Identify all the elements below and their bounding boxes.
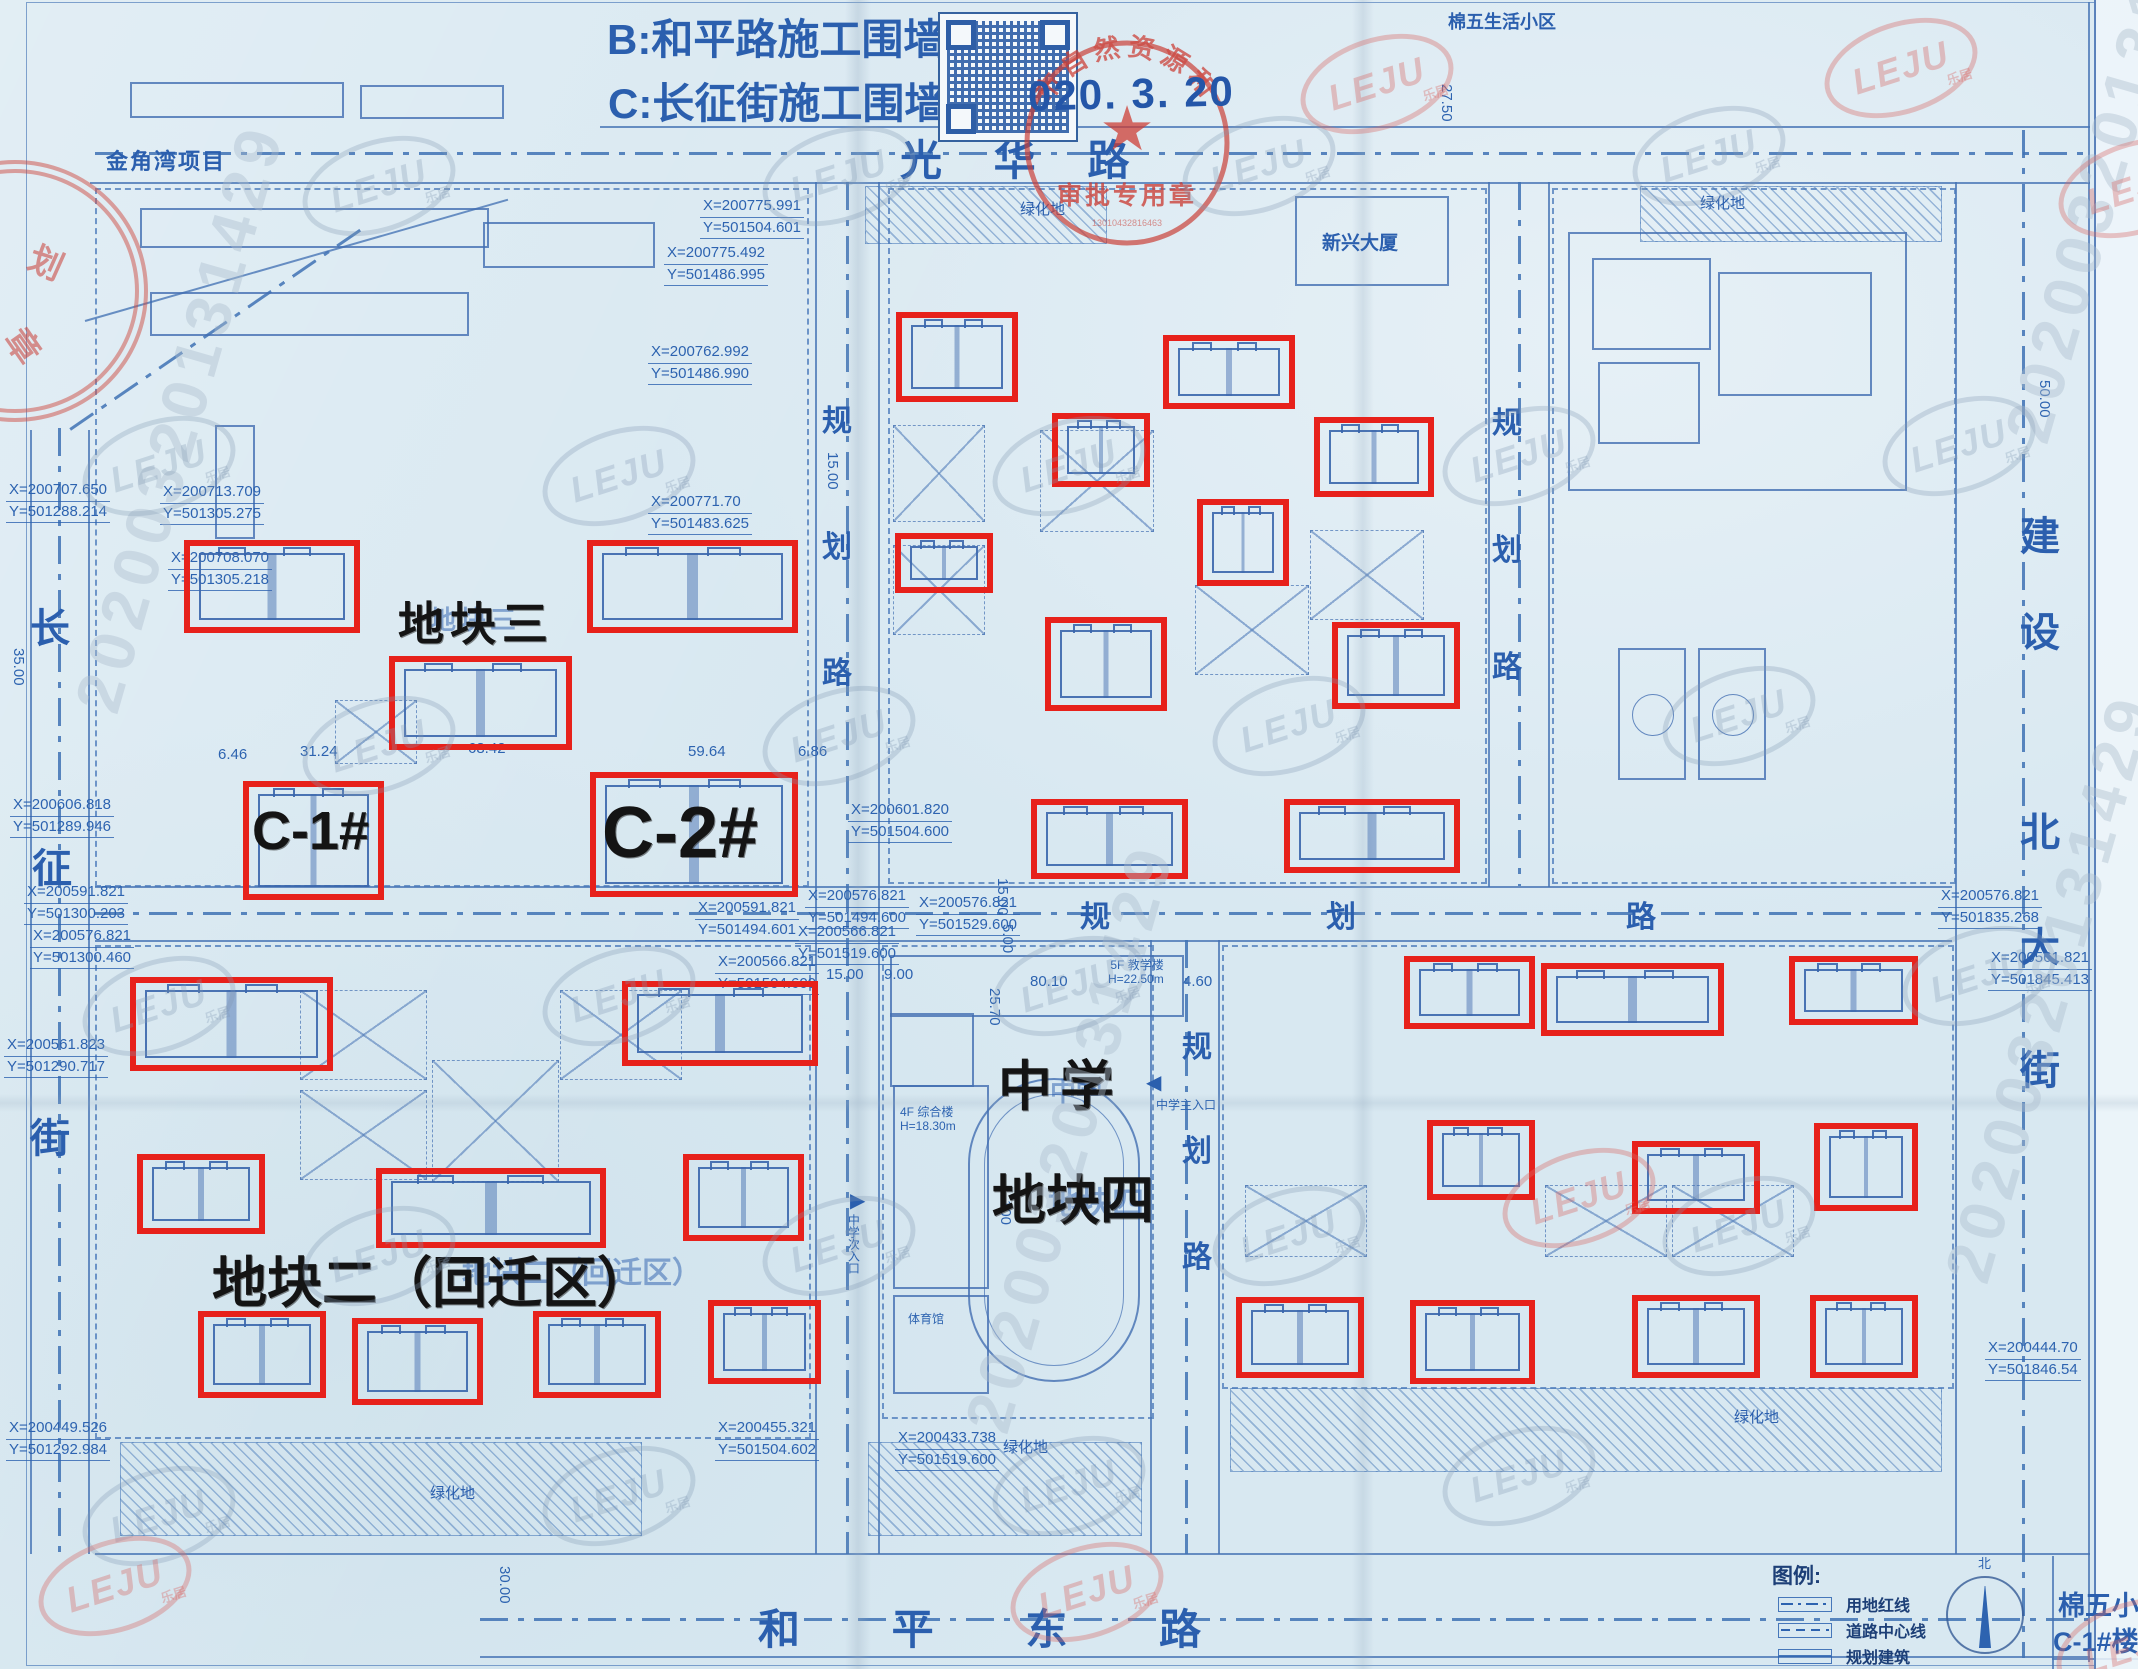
green-label: 绿化地	[430, 1482, 475, 1503]
entry-arrow-icon: ◀	[1146, 1070, 1161, 1095]
dimension-label: 9.00	[884, 966, 913, 983]
legend-item-label: 道路中心线	[1846, 1618, 1926, 1642]
highlight-box	[1031, 799, 1188, 879]
road-name-char: 长	[30, 596, 70, 654]
building-outline	[1556, 976, 1709, 1023]
legend-row: 道路中心线	[1778, 1618, 1926, 1642]
legend-row: 用地红线	[1778, 1592, 1910, 1616]
coordinate-label: X=200606.818Y=501289.946	[10, 795, 114, 838]
building-outline	[548, 1324, 646, 1385]
highlight-box	[896, 312, 1018, 402]
label-c1: C-1#	[252, 800, 369, 862]
highlight-box	[533, 1311, 661, 1398]
site-building-name: C-1#楼	[2053, 1620, 2138, 1659]
highlight-box	[1052, 413, 1150, 487]
coordinate-label: X=200561.821Y=501845.413	[1988, 948, 2092, 991]
legend-item-label: 用地红线	[1846, 1592, 1910, 1616]
road-name-char: 划	[1492, 525, 1522, 569]
road-heping-east: 和 平 东 路	[758, 1596, 1241, 1657]
building-outline	[1212, 512, 1274, 573]
qr-finder	[946, 104, 976, 134]
building-outline	[1442, 1133, 1520, 1187]
coordinate-label: X=200444.70Y=501846.54	[1985, 1338, 2081, 1381]
highlight-box	[198, 1311, 326, 1398]
highlight-box	[389, 656, 572, 750]
building-outline	[1825, 1308, 1903, 1365]
building-outline	[1347, 635, 1445, 696]
coordinate-label: X=200449.526Y=501292.984	[6, 1418, 110, 1461]
building-outline	[1067, 426, 1135, 474]
highlight-box	[708, 1300, 821, 1384]
coordinate-label: X=200707.650Y=501288.214	[6, 480, 110, 523]
building-outline	[1647, 1154, 1745, 1201]
dimension-label: 30.00	[496, 1566, 513, 1604]
building-outline	[1829, 1136, 1903, 1198]
highlight-box	[1284, 799, 1460, 873]
label-plot4: 地块四	[992, 1156, 1154, 1235]
coordinate-label: X=200561.823Y=501290.717	[4, 1035, 108, 1078]
coordinate-label: X=200433.738Y=501519.600	[895, 1428, 999, 1471]
note-line-b: B:和平路施工围墙。	[607, 6, 987, 67]
highlight-box	[1810, 1295, 1918, 1378]
entry-main-label: 中学主入口	[1156, 1098, 1216, 1112]
teach-height: H=22.50m	[1108, 972, 1164, 986]
coordinate-label: X=200455.321Y=501504.602	[715, 1418, 819, 1461]
highlight-box	[1332, 622, 1460, 709]
building-outline	[152, 1167, 250, 1221]
highlight-box	[622, 981, 818, 1066]
coordinate-label: X=200775.991Y=501504.601	[700, 196, 804, 239]
dimension-label: 25.70	[986, 988, 1003, 1026]
label-plot2: 地块二（回迁区）	[212, 1238, 652, 1318]
coordinate-label: X=200601.820Y=501504.600	[848, 800, 952, 843]
road-name-char: 建	[2020, 504, 2060, 562]
building-outline	[911, 325, 1003, 389]
highlight-box	[1789, 956, 1918, 1025]
building-outline	[199, 553, 345, 620]
green-label: 绿化地	[1700, 192, 1745, 213]
highlight-box	[1404, 956, 1535, 1029]
dimension-label: 27.50	[1438, 84, 1455, 122]
road-name-char: 划	[822, 522, 852, 566]
coordinate-label: X=200591.821Y=501300.203	[24, 882, 128, 925]
road-name-char: 街	[2020, 1038, 2060, 1096]
building-outline	[1804, 969, 1903, 1012]
road-name-char: 设	[2020, 600, 2060, 658]
north-label: 北	[1978, 1556, 1991, 1572]
teach-name: 5F 教学楼	[1110, 958, 1163, 972]
label-plot3: 地块三	[398, 588, 554, 654]
highlight-box	[1632, 1295, 1760, 1378]
highlight-box	[587, 540, 798, 633]
highlight-box	[1314, 417, 1434, 497]
stamp-center-text: 审批专用章	[1057, 181, 1197, 210]
green-label: 绿化地	[1003, 1436, 1048, 1457]
highlight-box	[376, 1168, 606, 1248]
highlight-box	[137, 1154, 265, 1234]
stamp-serial: 13010432816463	[1092, 218, 1162, 228]
road-name-char: 划	[1182, 1126, 1212, 1170]
general-name: 4F 综合楼	[900, 1105, 953, 1119]
building-outline	[698, 1167, 789, 1228]
label-c2: C-2#	[602, 792, 758, 874]
road-name-char: 北	[2020, 800, 2060, 858]
legend-row: 规划建筑	[1778, 1644, 1910, 1668]
area-xinxing: 新兴大厦	[1322, 228, 1398, 255]
legend-centerline-symbol	[1778, 1623, 1832, 1638]
dimension-label: 31.24	[300, 743, 338, 760]
highlight-box	[1632, 1141, 1760, 1214]
teach-building-label: 5F 教学楼 H=22.50m	[1108, 958, 1164, 987]
dimension-label: 6.46	[218, 746, 247, 763]
road-name-char: 路	[1626, 892, 1656, 936]
legend-building-symbol	[1778, 1649, 1832, 1664]
dimension-label: 59.64	[688, 743, 726, 760]
building-outline	[637, 994, 803, 1053]
legend-item-label: 规划建筑	[1846, 1644, 1910, 1668]
sheet-margin-strip	[2094, 0, 2138, 1669]
building-outline	[1419, 969, 1520, 1016]
highlight-box	[1814, 1123, 1918, 1211]
legend-title: 图例:	[1772, 1560, 1821, 1590]
approval-stamp: 市自然资源和 ★ 审批专用章 13010432816463	[1012, 28, 1242, 258]
general-height: H=18.30m	[900, 1119, 956, 1133]
road-name-char: 规	[1492, 398, 1522, 442]
building-outline	[602, 553, 783, 620]
highlight-box	[130, 977, 333, 1071]
approval-date: 020. 3. 20	[1027, 67, 1235, 120]
coordinate-label: X=200713.709Y=501305.275	[160, 482, 264, 525]
road-name-char: 路	[1182, 1232, 1212, 1276]
dimension-label: 4.60	[1183, 973, 1212, 990]
highlight-box	[683, 1154, 804, 1241]
compass-needle	[1979, 1582, 1991, 1648]
label-school: 中学	[998, 1042, 1122, 1121]
note-line-c: C:长征街施工围墙。	[608, 70, 988, 131]
road-name-char: 路	[1492, 642, 1522, 686]
entry-arrow-icon: ▶	[850, 1188, 865, 1213]
highlight-box	[1197, 499, 1289, 586]
building-outline	[1329, 430, 1419, 484]
road-name-char: 街	[30, 1106, 70, 1164]
building-outline	[723, 1313, 806, 1371]
gym-label: 体育馆	[908, 1312, 944, 1326]
dimension-label: 35.00	[10, 648, 27, 686]
coordinate-label: X=200775.492Y=501486.995	[664, 243, 768, 286]
dimension-label: 5.00	[999, 924, 1016, 953]
legend-redline-symbol	[1778, 1597, 1832, 1612]
area-mianwu-living: 棉五生活小区	[1448, 8, 1556, 34]
area-jinjiaowan: 金角湾项目	[106, 144, 226, 176]
building-outline	[213, 1324, 311, 1385]
highlight-box	[1427, 1120, 1535, 1200]
dimension-label: 15.00	[994, 878, 1011, 916]
road-name-char: 划	[1326, 892, 1356, 936]
building-outline	[367, 1331, 468, 1392]
coordinate-label: X=200576.821Y=501835.268	[1938, 886, 2042, 929]
building-outline	[391, 1181, 591, 1235]
site-plan-map: 市自然资源和 ★ 审批专用章 13010432816463 020. 3. 20…	[0, 0, 2138, 1669]
dimension-label: 6.86	[798, 743, 827, 760]
coordinate-label: X=200762.992Y=501486.990	[648, 342, 752, 385]
building-outline	[910, 546, 978, 580]
general-building-label: 4F 综合楼 H=18.30m	[900, 1105, 956, 1134]
north-compass-icon	[1946, 1576, 2024, 1654]
building-outline	[1178, 348, 1280, 396]
road-name-char: 规	[1080, 892, 1110, 936]
entry-side-label: 中学次入口	[846, 1214, 860, 1274]
qr-finder	[946, 20, 976, 50]
dimension-label: 15.00	[824, 452, 841, 490]
road-name-char: 规	[822, 396, 852, 440]
highlight-box	[1410, 1300, 1535, 1384]
coordinate-label: X=200576.821Y=501300.460	[30, 926, 134, 969]
dimension-label: 15.00	[826, 966, 864, 983]
dimension-label: 50.00	[2036, 380, 2053, 418]
highlight-box	[1045, 617, 1167, 711]
highlight-box	[1541, 963, 1724, 1036]
building-outline	[1046, 812, 1173, 866]
building-outline	[1647, 1308, 1745, 1365]
road-name-char: 规	[1182, 1022, 1212, 1066]
building-outline	[1425, 1313, 1520, 1371]
highlight-box	[895, 533, 993, 593]
green-label: 绿化地	[1734, 1406, 1779, 1427]
dimension-label: 80.10	[1030, 973, 1068, 990]
highlight-box	[352, 1318, 483, 1405]
highlight-box	[1163, 335, 1295, 409]
building-outline	[145, 990, 318, 1058]
building-outline	[1251, 1310, 1349, 1365]
road-name-char: 路	[822, 648, 852, 692]
building-outline	[1299, 812, 1445, 860]
highlight-box	[1236, 1297, 1364, 1378]
building-outline	[1060, 630, 1152, 698]
site-name: 棉五小区	[2058, 1584, 2138, 1623]
highlight-box	[184, 540, 360, 633]
building-outline	[404, 669, 557, 737]
coordinate-label: X=200591.821Y=501494.601	[695, 898, 799, 941]
coordinate-label: X=200771.70Y=501483.625	[648, 492, 752, 535]
